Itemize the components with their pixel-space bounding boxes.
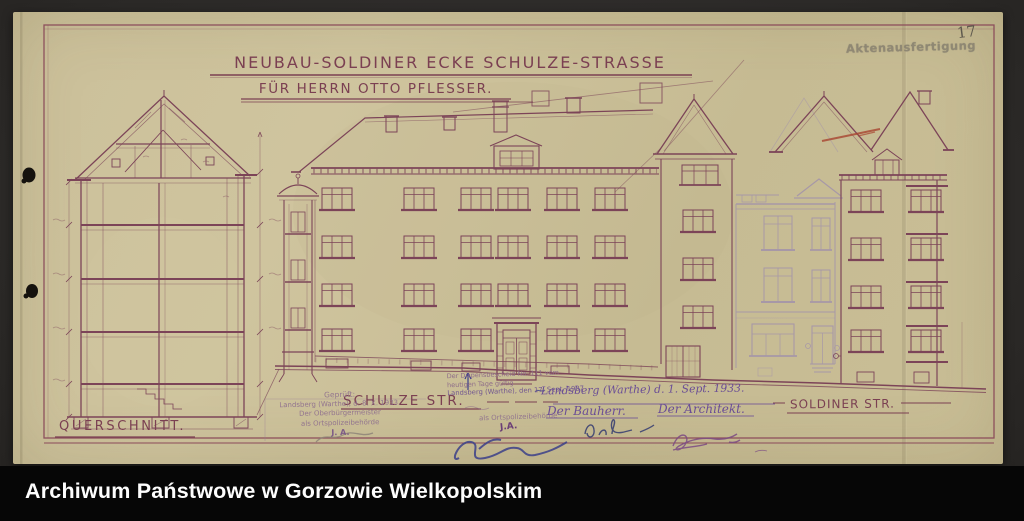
fold-line [902, 12, 906, 464]
owner-signature [585, 420, 654, 437]
handwritten-architect-label: Der Architekt. [658, 402, 745, 416]
facade-soldiner [769, 91, 962, 388]
edge-crease [20, 12, 23, 464]
architect-signature [673, 434, 740, 450]
archive-photo: NEUBAU-SOLDINER ECKE SCHULZE-STRASSE FÜR… [0, 0, 1024, 521]
dispensation-stamp-initials: J.A. [500, 421, 518, 433]
blueprint-sheet: NEUBAU-SOLDINER ECKE SCHULZE-STRASSE FÜR… [13, 12, 1003, 464]
drawing-title: NEUBAU-SOLDINER ECKE SCHULZE-STRASSE [210, 53, 690, 72]
approval-stamp: Geprüft: Landsberg (Warthe), d. 8. X. 19… [259, 388, 422, 439]
drawing-subtitle: FÜR HERRN OTTO PFLESSER. [243, 81, 509, 97]
archive-name: Archiwum Państwowe w Gorzowie Wielkopols… [25, 479, 542, 504]
page-number: 17 [956, 22, 977, 42]
archive-caption-bar: Archiwum Państwowe w Gorzowie Wielkopols… [0, 466, 1024, 521]
section-label: QUERSCHNITT. [59, 419, 186, 434]
handwritten-owner-label: Der Bauherr. [547, 404, 626, 418]
police-signature [455, 439, 567, 458]
street-label-soldiner: SOLDINER STR. [790, 397, 895, 412]
red-pencil-mark [822, 129, 880, 141]
punch-holes [22, 168, 39, 299]
